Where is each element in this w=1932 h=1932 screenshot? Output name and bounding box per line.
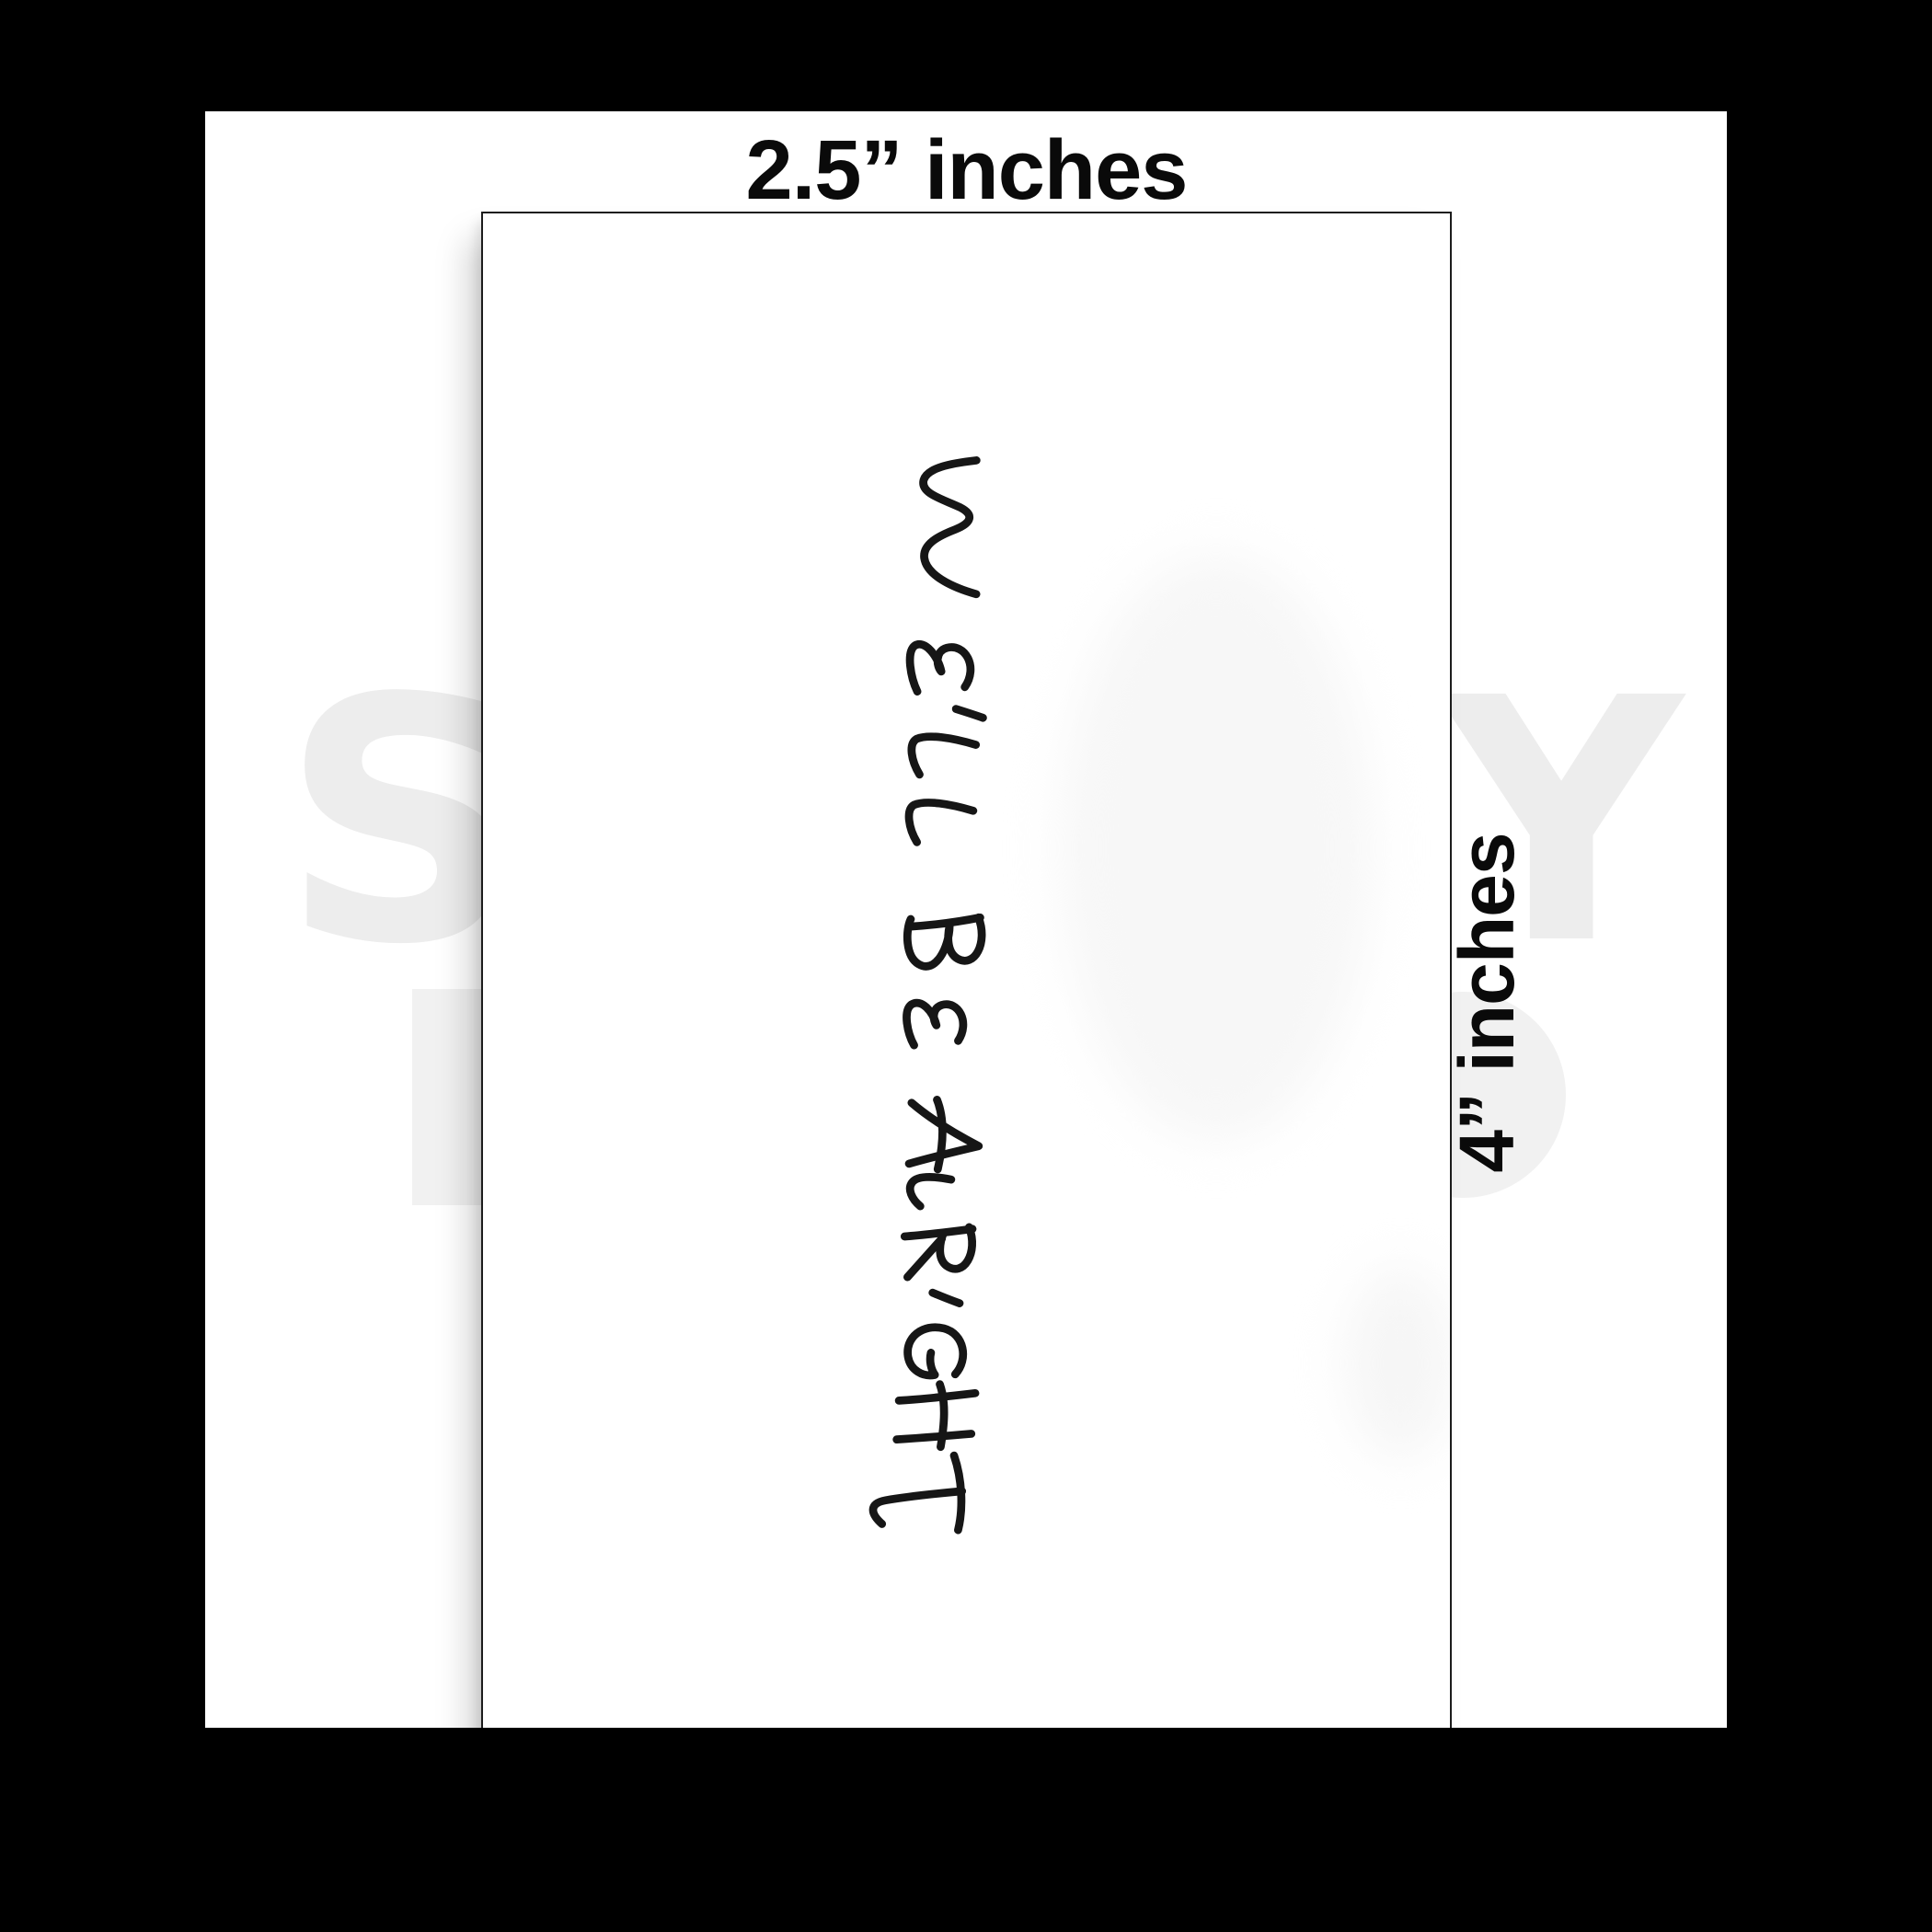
width-dimension-label: 2.5” inches (481, 128, 1452, 213)
watermark-fragment-bar (412, 989, 488, 1205)
height-dimension-label: 4” inches (1448, 833, 1525, 1172)
product-image: S Y 2.5” inches 4” inches WE'LL BE ALRIG… (0, 0, 1932, 1932)
handwritten-tattoo-text: WE'LL BE ALRIGHT (483, 213, 1452, 1728)
page-background: S Y 2.5” inches 4” inches WE'LL BE ALRIG… (205, 111, 1727, 1728)
tattoo-sheet-card: WE'LL BE ALRIGHT (481, 212, 1452, 1728)
